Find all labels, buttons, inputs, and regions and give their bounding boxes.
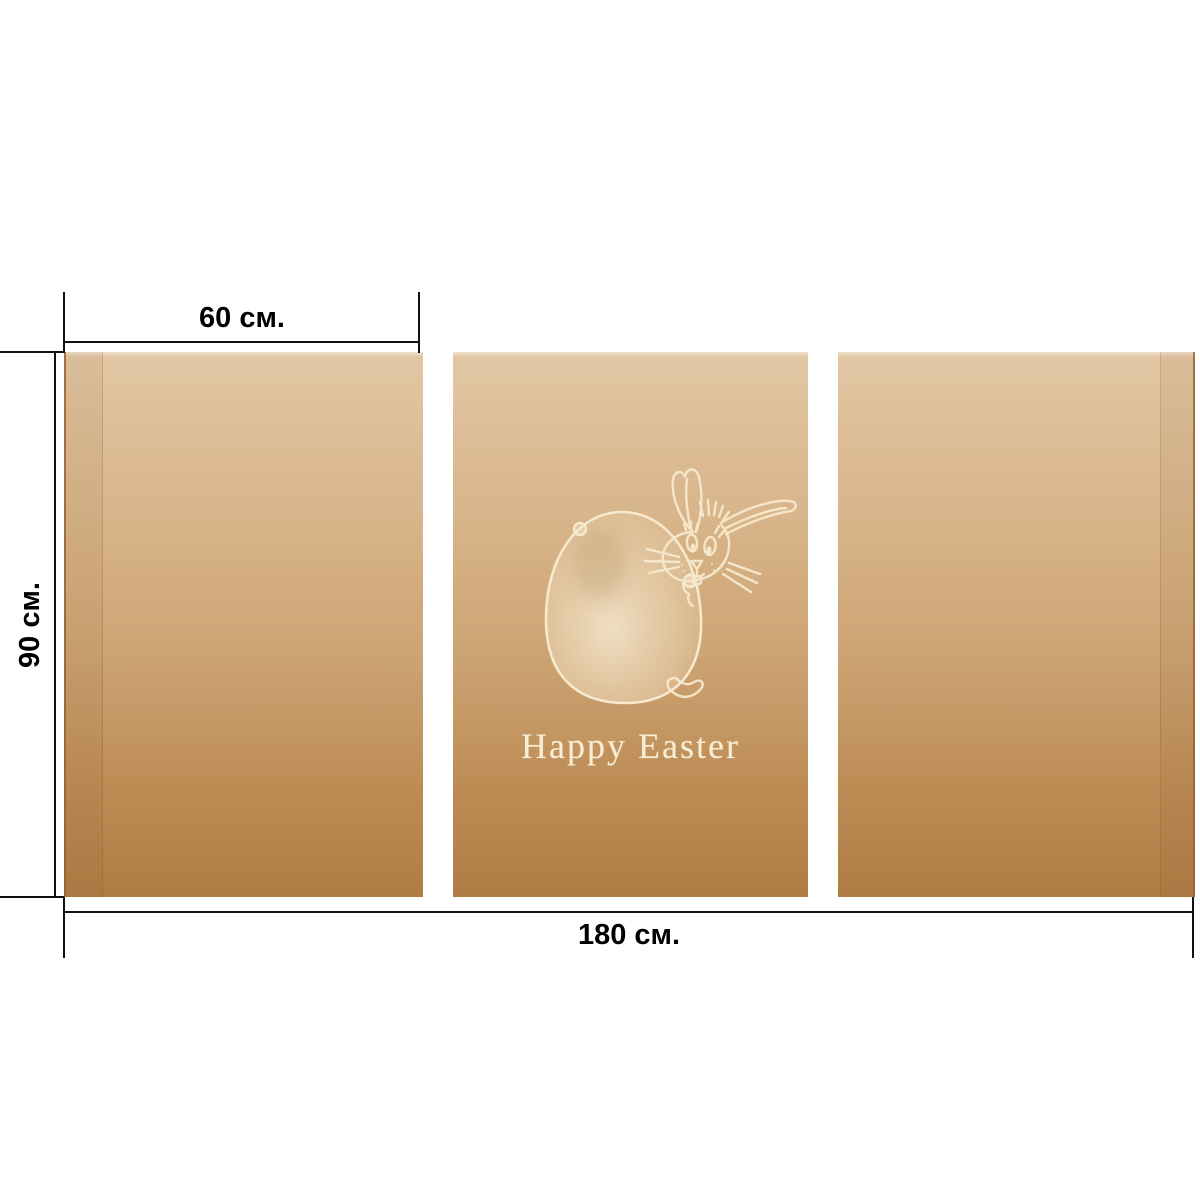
height-label: 90 см. — [10, 565, 50, 685]
canvas-wrap-edge-left — [64, 352, 103, 897]
canvas-wrap-edge-right — [1160, 352, 1195, 897]
triptych-mockup-canvas: Happy Easter 60 см. 90 см. 180 см. — [0, 0, 1200, 1200]
total-width-label: 180 см. — [64, 919, 1194, 952]
triptych-panel-left — [64, 352, 423, 897]
bottom-dimension-line — [64, 911, 1194, 913]
easter-egg-icon — [546, 512, 701, 703]
easter-bunny-egg-illustration — [453, 352, 808, 897]
triptych-panel-right — [838, 352, 1195, 897]
triptych-panel-center: Happy Easter — [453, 352, 808, 897]
left-dimension-tick-bottom — [0, 896, 64, 898]
top-dimension-line — [64, 341, 420, 343]
left-dimension-tick-top — [0, 351, 64, 353]
greeting-text: Happy Easter — [453, 725, 808, 767]
panel-width-label: 60 см. — [64, 302, 420, 335]
left-dimension-line — [54, 352, 56, 898]
